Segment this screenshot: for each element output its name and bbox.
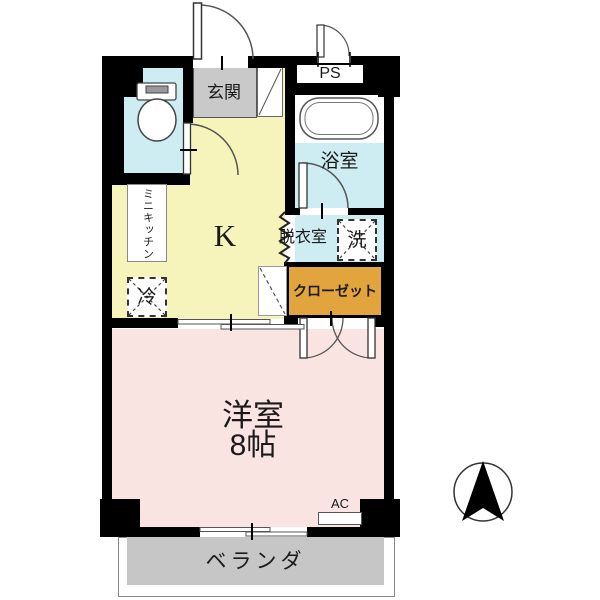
label-pipe-space: PS — [295, 63, 365, 85]
label-air-conditioner: AC — [318, 496, 362, 511]
ac-unit-box — [318, 512, 362, 525]
label-veranda: ベランダ — [127, 546, 384, 576]
bath-door-opening — [300, 208, 348, 215]
label-washer: 洗 — [337, 219, 377, 261]
label-closet: クローゼット — [286, 264, 384, 318]
wall-segment — [100, 499, 140, 537]
window-opening — [200, 527, 307, 537]
entrance-door-opening — [193, 56, 248, 68]
label-western-room-size: 8帖 — [230, 431, 277, 461]
wall-segment — [285, 56, 295, 213]
bathtub-band — [295, 93, 384, 143]
wall-segment — [102, 90, 124, 185]
wall-segment — [384, 56, 394, 537]
label-dressing-room: 脱衣室 — [260, 227, 346, 248]
counter-box — [258, 266, 287, 316]
label-entrance: 玄関 — [194, 79, 254, 105]
label-kitchen: K — [195, 215, 255, 255]
label-western-room-name: 洋室 — [222, 400, 284, 431]
label-bathroom: 浴室 — [295, 149, 384, 173]
label-refrigerator: 冷 — [127, 277, 167, 317]
wall-segment — [102, 318, 178, 328]
wall-segment — [360, 499, 400, 537]
floorplan-canvas: 玄関 PS 浴室 K 脱衣室 洗 ミニキッチン 冷 クローゼット 洋室 8帖 A… — [0, 0, 600, 600]
ps-door-opening — [317, 56, 351, 63]
wall-segment — [183, 56, 193, 123]
label-western-room: 洋室 8帖 — [133, 392, 373, 468]
north-compass-icon — [454, 461, 512, 521]
label-mini-kitchen: ミニキッチン — [127, 186, 167, 262]
shoe-cabinet — [257, 67, 283, 117]
